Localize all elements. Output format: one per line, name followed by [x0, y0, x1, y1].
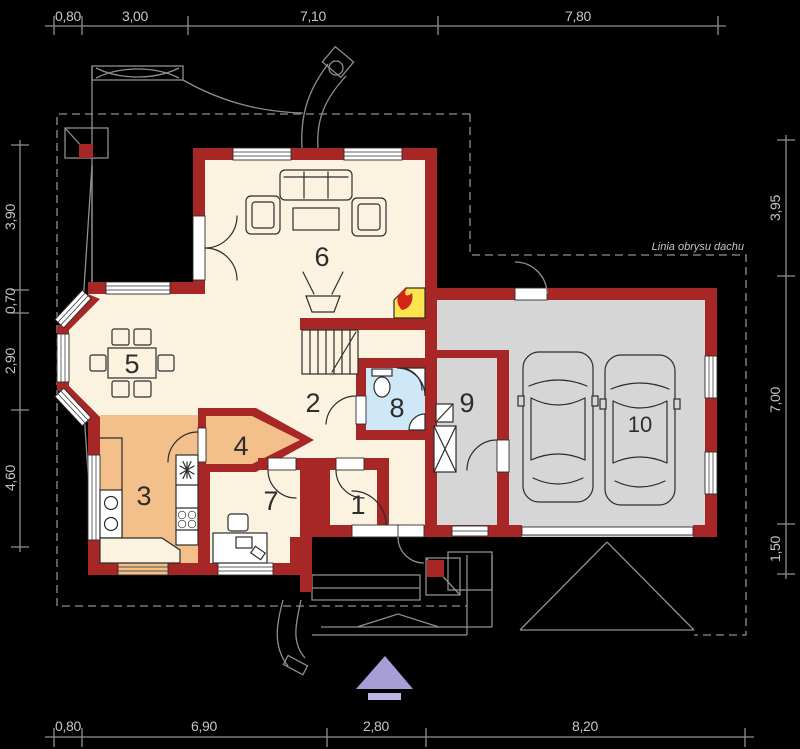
floor-plan-canvas: 1 2 3 4 5 6 7 8 9 10 0,80 3,00 7,10 7,80…	[0, 0, 800, 749]
roof-outline-label: Linia obrysu dachu	[652, 241, 744, 253]
dim-bottom-4: 8,20	[572, 718, 599, 734]
flue-pipe-outline	[302, 47, 354, 148]
chimney-outline	[65, 128, 108, 158]
garage-side-door	[515, 262, 547, 300]
dim-left-1: 3,90	[2, 203, 18, 230]
garage-window-lower	[705, 452, 717, 494]
room-number-7: 7	[263, 486, 278, 516]
dim-bottom-3: 2,80	[363, 718, 390, 734]
living-window-left	[233, 148, 291, 160]
room-number-3: 3	[136, 481, 151, 511]
flue-shafts	[434, 404, 456, 472]
dim-top-4: 7,80	[565, 8, 592, 24]
back-door	[398, 525, 424, 563]
side-steps-outline	[426, 552, 492, 595]
dim-right-3: 1,50	[767, 535, 783, 562]
room-number-9: 9	[459, 388, 474, 418]
room-number-2: 2	[305, 388, 320, 418]
north-arrow	[356, 656, 413, 700]
armchair-left	[246, 196, 280, 234]
room-number-10: 10	[628, 412, 652, 437]
ruler-top: 0,80 3,00 7,10 7,80	[45, 8, 726, 35]
dim-bottom-1: 0,80	[55, 718, 82, 734]
dim-top-1: 0,80	[55, 8, 82, 24]
kitchen-terrace-door	[118, 563, 168, 575]
dining-window	[106, 282, 170, 294]
stairs	[302, 330, 358, 374]
gable-outline	[520, 542, 694, 630]
living-window-right	[344, 148, 402, 160]
kitchen-island	[100, 538, 180, 563]
utility-window	[452, 526, 488, 536]
north-arrow-icon	[356, 656, 413, 689]
dim-top-2: 3,00	[122, 8, 149, 24]
north-arrow-base	[368, 693, 401, 700]
garage-window-upper	[705, 356, 717, 398]
garage-door	[522, 527, 693, 535]
bay-window-middle	[57, 334, 69, 382]
dim-left-3: 2,90	[2, 347, 18, 374]
office-window	[218, 563, 273, 575]
ruler-right: 3,95 7,00 1,50	[767, 135, 795, 579]
dim-right-1: 3,95	[767, 194, 783, 221]
room-number-8: 8	[389, 393, 404, 423]
armchair-right	[352, 198, 386, 236]
dim-top-3: 7,10	[300, 8, 327, 24]
ruler-left: 3,90 0,70 2,90 4,60	[2, 140, 29, 552]
sofa	[280, 170, 352, 200]
ruler-bottom: 0,80 6,90 2,80 8,20	[45, 718, 754, 747]
dim-left-2: 0,70	[2, 287, 18, 314]
car-left	[518, 352, 598, 502]
room-number-6: 6	[314, 242, 329, 272]
coffee-table	[293, 208, 339, 230]
dim-left-4: 4,60	[2, 464, 18, 491]
kitchen-window	[88, 455, 100, 540]
room-number-5: 5	[124, 349, 139, 379]
room-number-1: 1	[350, 490, 365, 520]
room-number-4: 4	[233, 431, 248, 461]
dim-bottom-2: 6,90	[191, 718, 218, 734]
floor-plan-drawing: 1 2 3 4 5 6 7 8 9 10 0,80 3,00 7,10 7,80…	[0, 0, 800, 749]
dim-right-2: 7,00	[767, 386, 783, 413]
